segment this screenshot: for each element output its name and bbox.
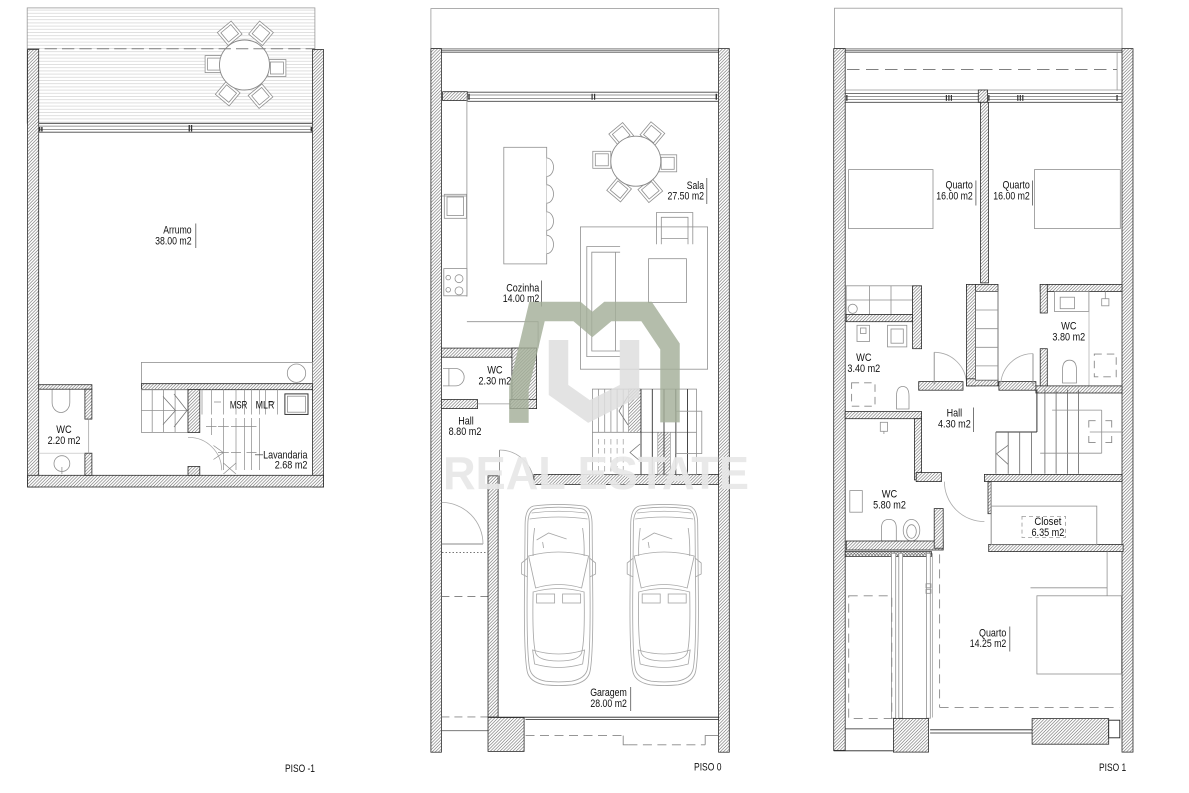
svg-text:14.25 m2: 14.25 m2 <box>970 638 1007 650</box>
svg-text:2.68 m2: 2.68 m2 <box>275 460 308 472</box>
svg-text:2.30 m2: 2.30 m2 <box>479 375 512 387</box>
svg-text:MLR: MLR <box>256 400 275 412</box>
svg-text:MSR: MSR <box>230 400 248 412</box>
svg-text:PISO -1: PISO -1 <box>285 763 315 775</box>
svg-text:REAL ESTATE: REAL ESTATE <box>443 447 749 499</box>
svg-text:5.80 m2: 5.80 m2 <box>873 499 906 511</box>
svg-text:28.00 m2: 28.00 m2 <box>590 698 627 710</box>
svg-text:16.00 m2: 16.00 m2 <box>936 191 973 203</box>
svg-text:16.00 m2: 16.00 m2 <box>993 191 1030 203</box>
svg-text:4.30 m2: 4.30 m2 <box>938 418 971 430</box>
svg-text:2.20 m2: 2.20 m2 <box>48 435 81 447</box>
svg-text:3.40 m2: 3.40 m2 <box>847 363 880 375</box>
svg-text:27.50 m2: 27.50 m2 <box>668 191 705 203</box>
svg-text:3.80 m2: 3.80 m2 <box>1052 331 1085 343</box>
svg-text:PISO 1: PISO 1 <box>1099 762 1126 774</box>
svg-text:6.35 m2: 6.35 m2 <box>1032 527 1065 539</box>
svg-text:PISO 0: PISO 0 <box>694 761 722 773</box>
svg-text:38.00 m2: 38.00 m2 <box>155 235 192 247</box>
svg-text:8.80 m2: 8.80 m2 <box>449 426 482 438</box>
